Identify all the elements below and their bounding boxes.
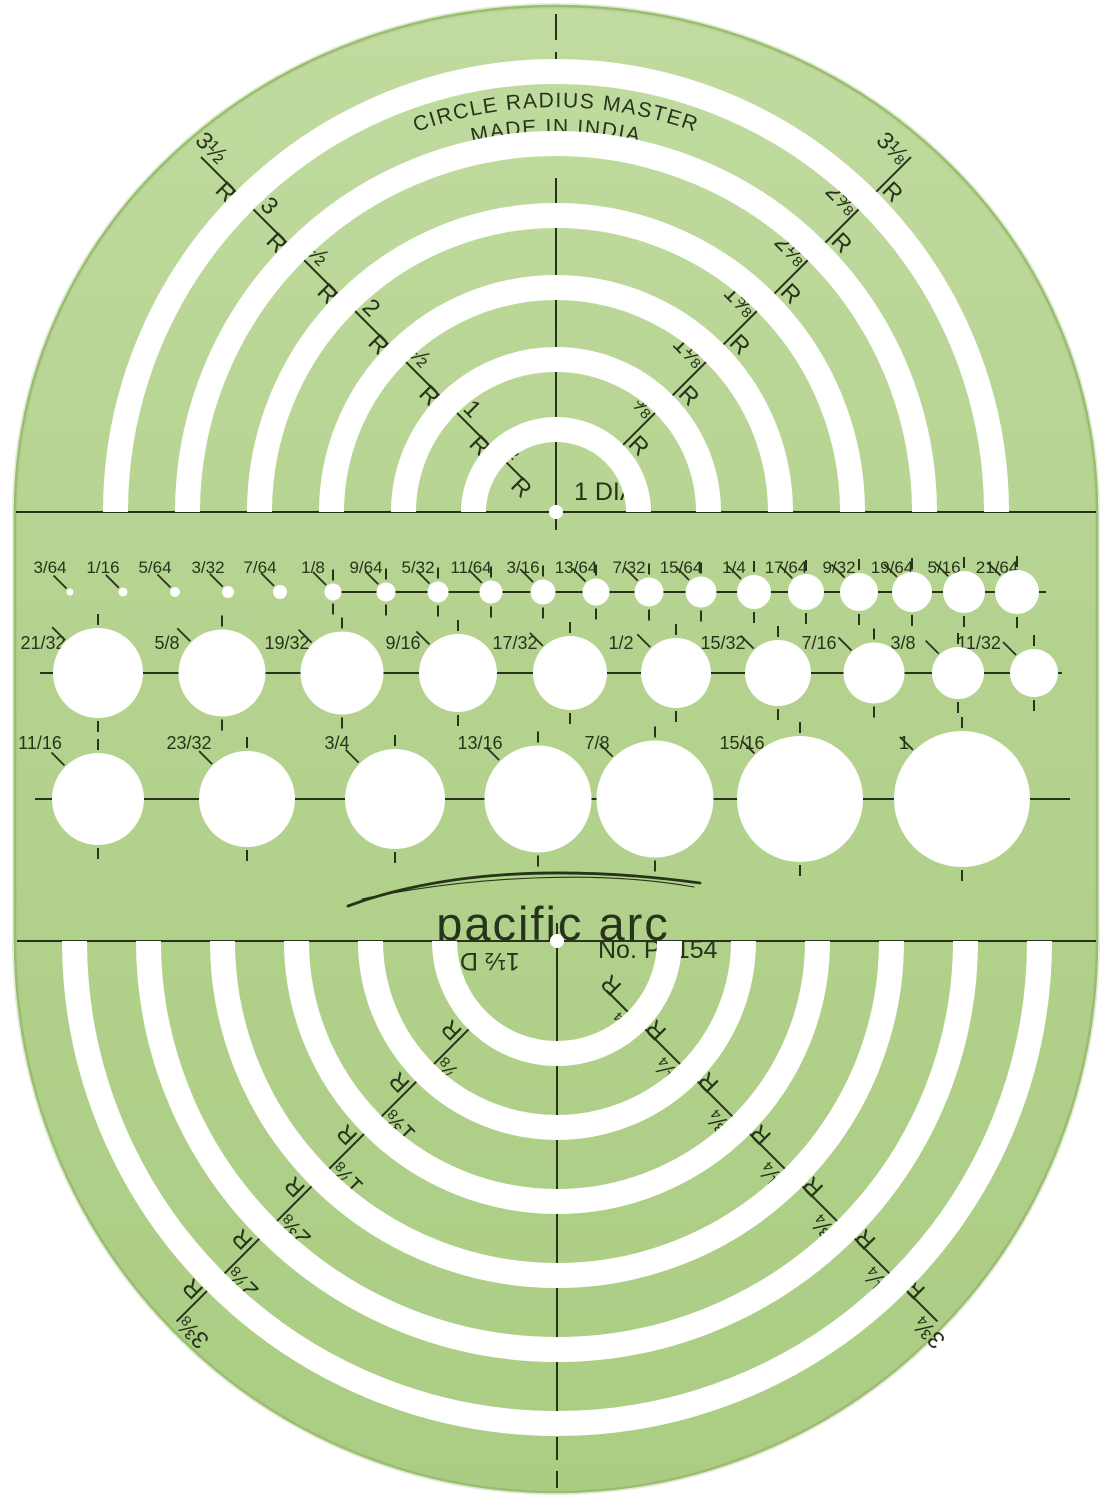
hole-size-label: 1/2 (608, 633, 633, 653)
circle-hole-1/4 (737, 575, 771, 609)
hole-size-label: 21/32 (20, 633, 65, 653)
hole-size-label: 9/16 (385, 633, 420, 653)
circle-hole-13/64 (583, 579, 610, 606)
product-photo: CIRCLE RADIUS MASTERMADE IN INDIA½R1R1½R… (0, 0, 1113, 1500)
hole-size-label: 15/64 (660, 558, 703, 577)
circle-hole-1/16 (119, 588, 128, 597)
circle-hole-3/64 (67, 589, 74, 596)
circle-hole-7/8 (597, 741, 714, 858)
hole-size-label: 3/64 (33, 558, 66, 577)
hole-size-label: 13/16 (457, 733, 502, 753)
circle-hole-7/32 (635, 578, 664, 607)
hole-size-label: 7/16 (801, 633, 836, 653)
circle-hole-5/64 (170, 587, 180, 597)
center-pivot-hole (550, 934, 564, 948)
circle-hole-21/64 (995, 570, 1039, 614)
center-pivot-hole (549, 505, 563, 519)
circle-hole-11/32 (1010, 649, 1058, 697)
hole-size-label: 9/64 (349, 558, 382, 577)
hole-size-label: 15/16 (719, 733, 764, 753)
circle-hole-5/8 (179, 630, 266, 717)
circle-hole-7/16 (844, 643, 905, 704)
hole-size-label: 5/32 (401, 558, 434, 577)
hole-size-label: 17/64 (765, 558, 808, 577)
circle-hole-19/32 (301, 632, 384, 715)
dia-label: 7½ DIA (0, 0, 80, 6)
circle-hole-1/2 (641, 638, 711, 708)
circle-hole-5/16 (943, 571, 985, 613)
hole-size-label: 1/4 (722, 558, 746, 577)
hole-size-label: 7/32 (612, 558, 645, 577)
circle-hole-21/32 (53, 628, 143, 718)
circle-hole-3/4 (345, 749, 445, 849)
circle-hole-9/64 (377, 583, 396, 602)
hole-size-label: 3/4 (324, 733, 349, 753)
circle-hole-13/16 (485, 746, 592, 853)
hole-size-label: 23/32 (166, 733, 211, 753)
circle-hole-15/64 (686, 577, 717, 608)
hole-size-label: 1 (899, 733, 909, 753)
circle-hole-17/64 (788, 574, 824, 610)
circle-hole-3/16 (531, 580, 556, 605)
circle-hole-7/64 (273, 585, 287, 599)
hole-size-label: 19/32 (264, 633, 309, 653)
circle-hole-11/16 (52, 753, 144, 845)
hole-size-label: 3/16 (506, 558, 539, 577)
hole-size-label: 7/64 (243, 558, 276, 577)
hole-size-label: 17/32 (492, 633, 537, 653)
hole-size-label: 3/32 (191, 558, 224, 577)
circle-hole-1/8 (325, 584, 342, 601)
circle-hole-5/32 (428, 582, 449, 603)
circle-hole-9/16 (419, 634, 497, 712)
circle-hole-17/32 (533, 636, 607, 710)
hole-size-label: 11/16 (18, 733, 62, 753)
circle-hole-19/64 (892, 572, 932, 612)
hole-size-label: 13/64 (555, 558, 598, 577)
hole-size-label: 11/64 (450, 558, 491, 577)
hole-size-label: 1/16 (86, 558, 119, 577)
hole-size-label: 5/64 (138, 558, 171, 577)
hole-size-label: 5/8 (154, 633, 179, 653)
circle-hole-3/8 (932, 647, 984, 699)
circle-hole-15/32 (745, 640, 811, 706)
hole-size-label: 9/32 (822, 558, 855, 577)
circle-hole-23/32 (199, 751, 295, 847)
circle-template-graphic: CIRCLE RADIUS MASTERMADE IN INDIA½R1R1½R… (0, 0, 1113, 1500)
circle-hole-15/16 (737, 736, 863, 862)
hole-size-label: 3/8 (890, 633, 915, 653)
circle-hole-11/64 (480, 581, 503, 604)
hole-size-label: 7/8 (584, 733, 609, 753)
circle-hole-9/32 (840, 573, 878, 611)
circle-hole-1 (894, 731, 1030, 867)
hole-size-label: 1/8 (301, 558, 325, 577)
circle-hole-3/32 (222, 586, 234, 598)
hole-size-label: 15/32 (700, 633, 745, 653)
